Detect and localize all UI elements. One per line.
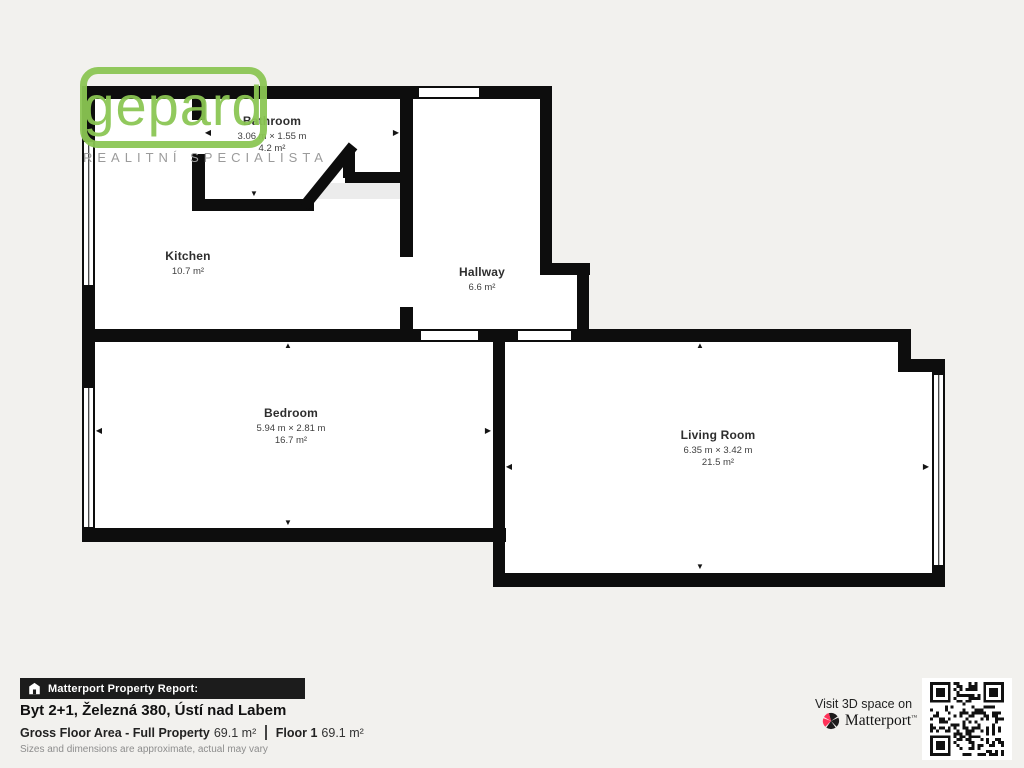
bedroom-door: [420, 331, 479, 340]
living-room-window: [932, 375, 945, 565]
dimension-arrow-down: ▼: [250, 190, 258, 198]
dimension-arrow-left: ◀: [506, 463, 512, 471]
wall-hallway-right: [540, 86, 552, 266]
dimension-arrow-down: ▼: [696, 563, 704, 571]
kitchen-door: [400, 256, 413, 308]
matterport-house-icon: [28, 682, 41, 695]
room-name: Living Room: [681, 428, 756, 442]
dimension-arrow-up: ▲: [696, 342, 704, 350]
room-area: 16.7 m²: [257, 435, 326, 446]
matterport-wordmark: Matterport™: [845, 712, 917, 730]
room-dimensions: 6.35 m × 3.42 m: [681, 445, 756, 456]
room-dimensions: 5.94 m × 2.81 m: [257, 423, 326, 434]
dimension-arrow-right: ▶: [393, 129, 399, 137]
room-name: Kitchen: [165, 249, 210, 263]
property-report-page: ▲ ▼ ◀ ▶ ▲ ▼ ◀ ▶ ▲ ▼ ◀ ▶ Bathroom 3.06 m …: [0, 0, 1024, 768]
area-summary: Gross Floor Area - Full Property 69.1 m²…: [20, 725, 364, 740]
room-area: 10.7 m²: [165, 266, 210, 277]
floor-area-value: 69.1 m²: [321, 726, 363, 740]
dimension-arrow-right: ▶: [485, 427, 491, 435]
hallway-floor: [406, 92, 546, 334]
dimension-arrow-down: ▼: [284, 519, 292, 527]
living-room-door: [517, 331, 572, 340]
bedroom-window: [82, 388, 95, 527]
wall-bathroom-bottom: [192, 199, 314, 211]
entrance-door: [418, 88, 480, 97]
visit-3d-text: Visit 3D space on: [806, 697, 921, 711]
room-name: Bedroom: [257, 406, 326, 420]
room-label-kitchen: Kitchen 10.7 m²: [165, 249, 210, 277]
qr-code: [930, 682, 1004, 756]
divider: [265, 725, 267, 740]
room-name: Hallway: [459, 265, 505, 279]
trademark-mark: ™: [911, 715, 917, 721]
floor-label: Floor 1: [276, 726, 318, 740]
gross-floor-area-label: Gross Floor Area - Full Property: [20, 726, 210, 740]
hallway-floor-ext: [540, 270, 581, 334]
report-header-label: Matterport Property Report:: [48, 683, 198, 695]
wall-living-bottom: [493, 573, 945, 587]
room-label-bedroom: Bedroom 5.94 m × 2.81 m 16.7 m²: [257, 406, 326, 446]
dimension-arrow-left: ◀: [96, 427, 102, 435]
room-label-living-room: Living Room 6.35 m × 3.42 m 21.5 m²: [681, 428, 756, 468]
qr-code-card: [922, 678, 1012, 760]
gross-floor-area-value: 69.1 m²: [214, 726, 256, 740]
matterport-brand: Matterport™: [818, 712, 921, 730]
room-area: 6.6 m²: [459, 282, 505, 293]
gepard-tagline: REALITNÍ SPECIALISTA: [83, 150, 328, 165]
wall-hallway-step-v: [577, 263, 589, 336]
room-area: 21.5 m²: [681, 457, 756, 468]
wall-living-left: [493, 329, 505, 587]
report-header-bar: Matterport Property Report:: [20, 678, 305, 699]
matterport-pinwheel-icon: [822, 712, 840, 730]
disclaimer-text: Sizes and dimensions are approximate, ac…: [20, 744, 268, 755]
gepard-logo: gepard: [80, 67, 267, 148]
room-label-hallway: Hallway 6.6 m²: [459, 265, 505, 293]
dimension-arrow-right: ▶: [923, 463, 929, 471]
dimension-arrow-up: ▲: [284, 342, 292, 350]
property-title: Byt 2+1, Železná 380, Ústí nad Labem: [20, 702, 286, 719]
gepard-wordmark: gepard: [83, 78, 263, 134]
wall-bathroom-step-h: [345, 172, 412, 183]
wall-bedroom-bottom: [82, 528, 506, 542]
